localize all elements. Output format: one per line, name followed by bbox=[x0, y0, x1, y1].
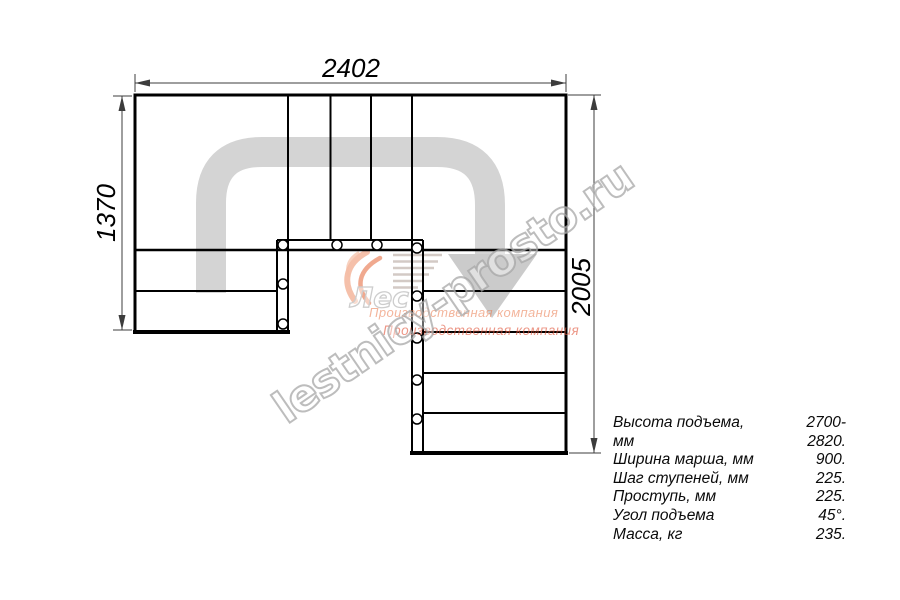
spec-value: 235. bbox=[816, 526, 846, 545]
dim-arrow-down-icon bbox=[591, 438, 598, 453]
dimension-left-value: 1370 bbox=[91, 184, 121, 242]
spec-row-tread: Проступь, мм 225. bbox=[613, 488, 846, 507]
spec-value: 225. bbox=[816, 470, 846, 489]
dimension-top-value: 2402 bbox=[321, 53, 380, 83]
spec-value: 2700-2820. bbox=[768, 414, 846, 451]
spec-label: Ширина марша, мм bbox=[613, 451, 754, 470]
spec-row-height: Высота подъема, мм 2700-2820. bbox=[613, 414, 846, 451]
dim-arrow-down-icon bbox=[119, 315, 126, 330]
dim-arrow-up-icon bbox=[119, 96, 126, 111]
dimension-left: 1370 bbox=[91, 96, 132, 330]
spec-label: Масса, кг bbox=[613, 526, 682, 545]
spec-label: Высота подъема, мм bbox=[613, 414, 768, 451]
dimension-right: 2005 bbox=[566, 95, 601, 453]
spec-label: Проступь, мм bbox=[613, 488, 716, 507]
spec-row-mass: Масса, кг 235. bbox=[613, 526, 846, 545]
stair-plan-canvas: Лес bbox=[0, 0, 900, 600]
spec-value: 225. bbox=[816, 488, 846, 507]
specs-table: Высота подъема, мм 2700-2820. Ширина мар… bbox=[613, 414, 846, 544]
spec-row-angle: Угол подъема 45°. bbox=[613, 507, 846, 526]
spec-row-step-pitch: Шаг ступеней, мм 225. bbox=[613, 470, 846, 489]
spec-row-march-width: Ширина марша, мм 900. bbox=[613, 451, 846, 470]
dim-arrow-up-icon bbox=[591, 95, 598, 110]
spec-value: 45°. bbox=[818, 507, 846, 526]
dimension-top: 2402 bbox=[135, 53, 566, 92]
spec-label: Шаг ступеней, мм bbox=[613, 470, 749, 489]
dim-arrow-left-icon bbox=[135, 80, 150, 87]
spec-value: 900. bbox=[816, 451, 846, 470]
dim-arrow-right-icon bbox=[551, 80, 566, 87]
spec-label: Угол подъема bbox=[613, 507, 714, 526]
dimension-right-value: 2005 bbox=[566, 258, 596, 317]
